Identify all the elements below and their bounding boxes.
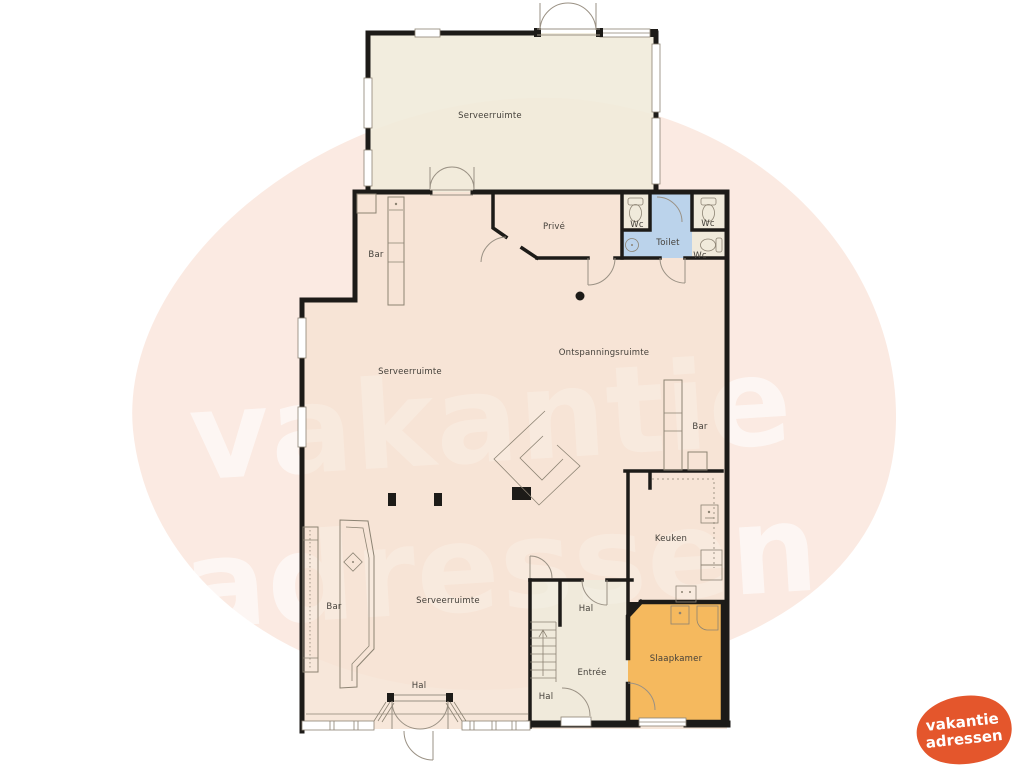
room-label-bar-right: Bar (692, 422, 707, 432)
room-label-ontspanningsruimte: Ontspanningsruimte (559, 348, 649, 358)
room-label-serveerruimte-top: Serveerruimte (458, 111, 522, 121)
room-label-wc-left: Wc (630, 220, 644, 230)
window (652, 44, 660, 112)
room-label-bar-bottom: Bar (326, 602, 341, 612)
room-label-keuken: Keuken (655, 534, 687, 544)
logo: vakantie adressen (913, 691, 1015, 768)
column (388, 493, 396, 506)
room-label-slaapkamer: Slaapkamer (650, 654, 703, 664)
column-round (576, 292, 585, 301)
room-label-entree: Entrée (577, 667, 606, 678)
room-label-hal-stairs: Hal (539, 692, 554, 702)
room-label-wc-right: Wc (701, 219, 715, 229)
window (415, 29, 440, 37)
window (364, 78, 372, 128)
window (652, 118, 660, 184)
room-label-serveerruimte-mid: Serveerruimte (378, 367, 442, 377)
door-exterior (404, 731, 433, 760)
room-label-prive: Privé (543, 221, 565, 232)
door-entree-recess (561, 717, 591, 726)
floorplan-image: vakantie adressen vakantie adressen (0, 0, 1024, 768)
double-door-top (540, 3, 596, 30)
room-label-bar-top: Bar (368, 250, 383, 260)
column (434, 493, 442, 506)
window (298, 407, 306, 447)
window (364, 150, 372, 186)
room-label-serveerruimte-bottom: Serveerruimte (416, 596, 480, 606)
window (298, 318, 306, 358)
room-label-toilet: Toilet (655, 238, 680, 248)
room-label-hal-entry: Hal (412, 681, 427, 691)
room-label-wc-bottom: Wc (693, 251, 707, 261)
room-label-hal-mid: Hal (579, 604, 594, 614)
window-band-bottom-left (302, 721, 374, 730)
